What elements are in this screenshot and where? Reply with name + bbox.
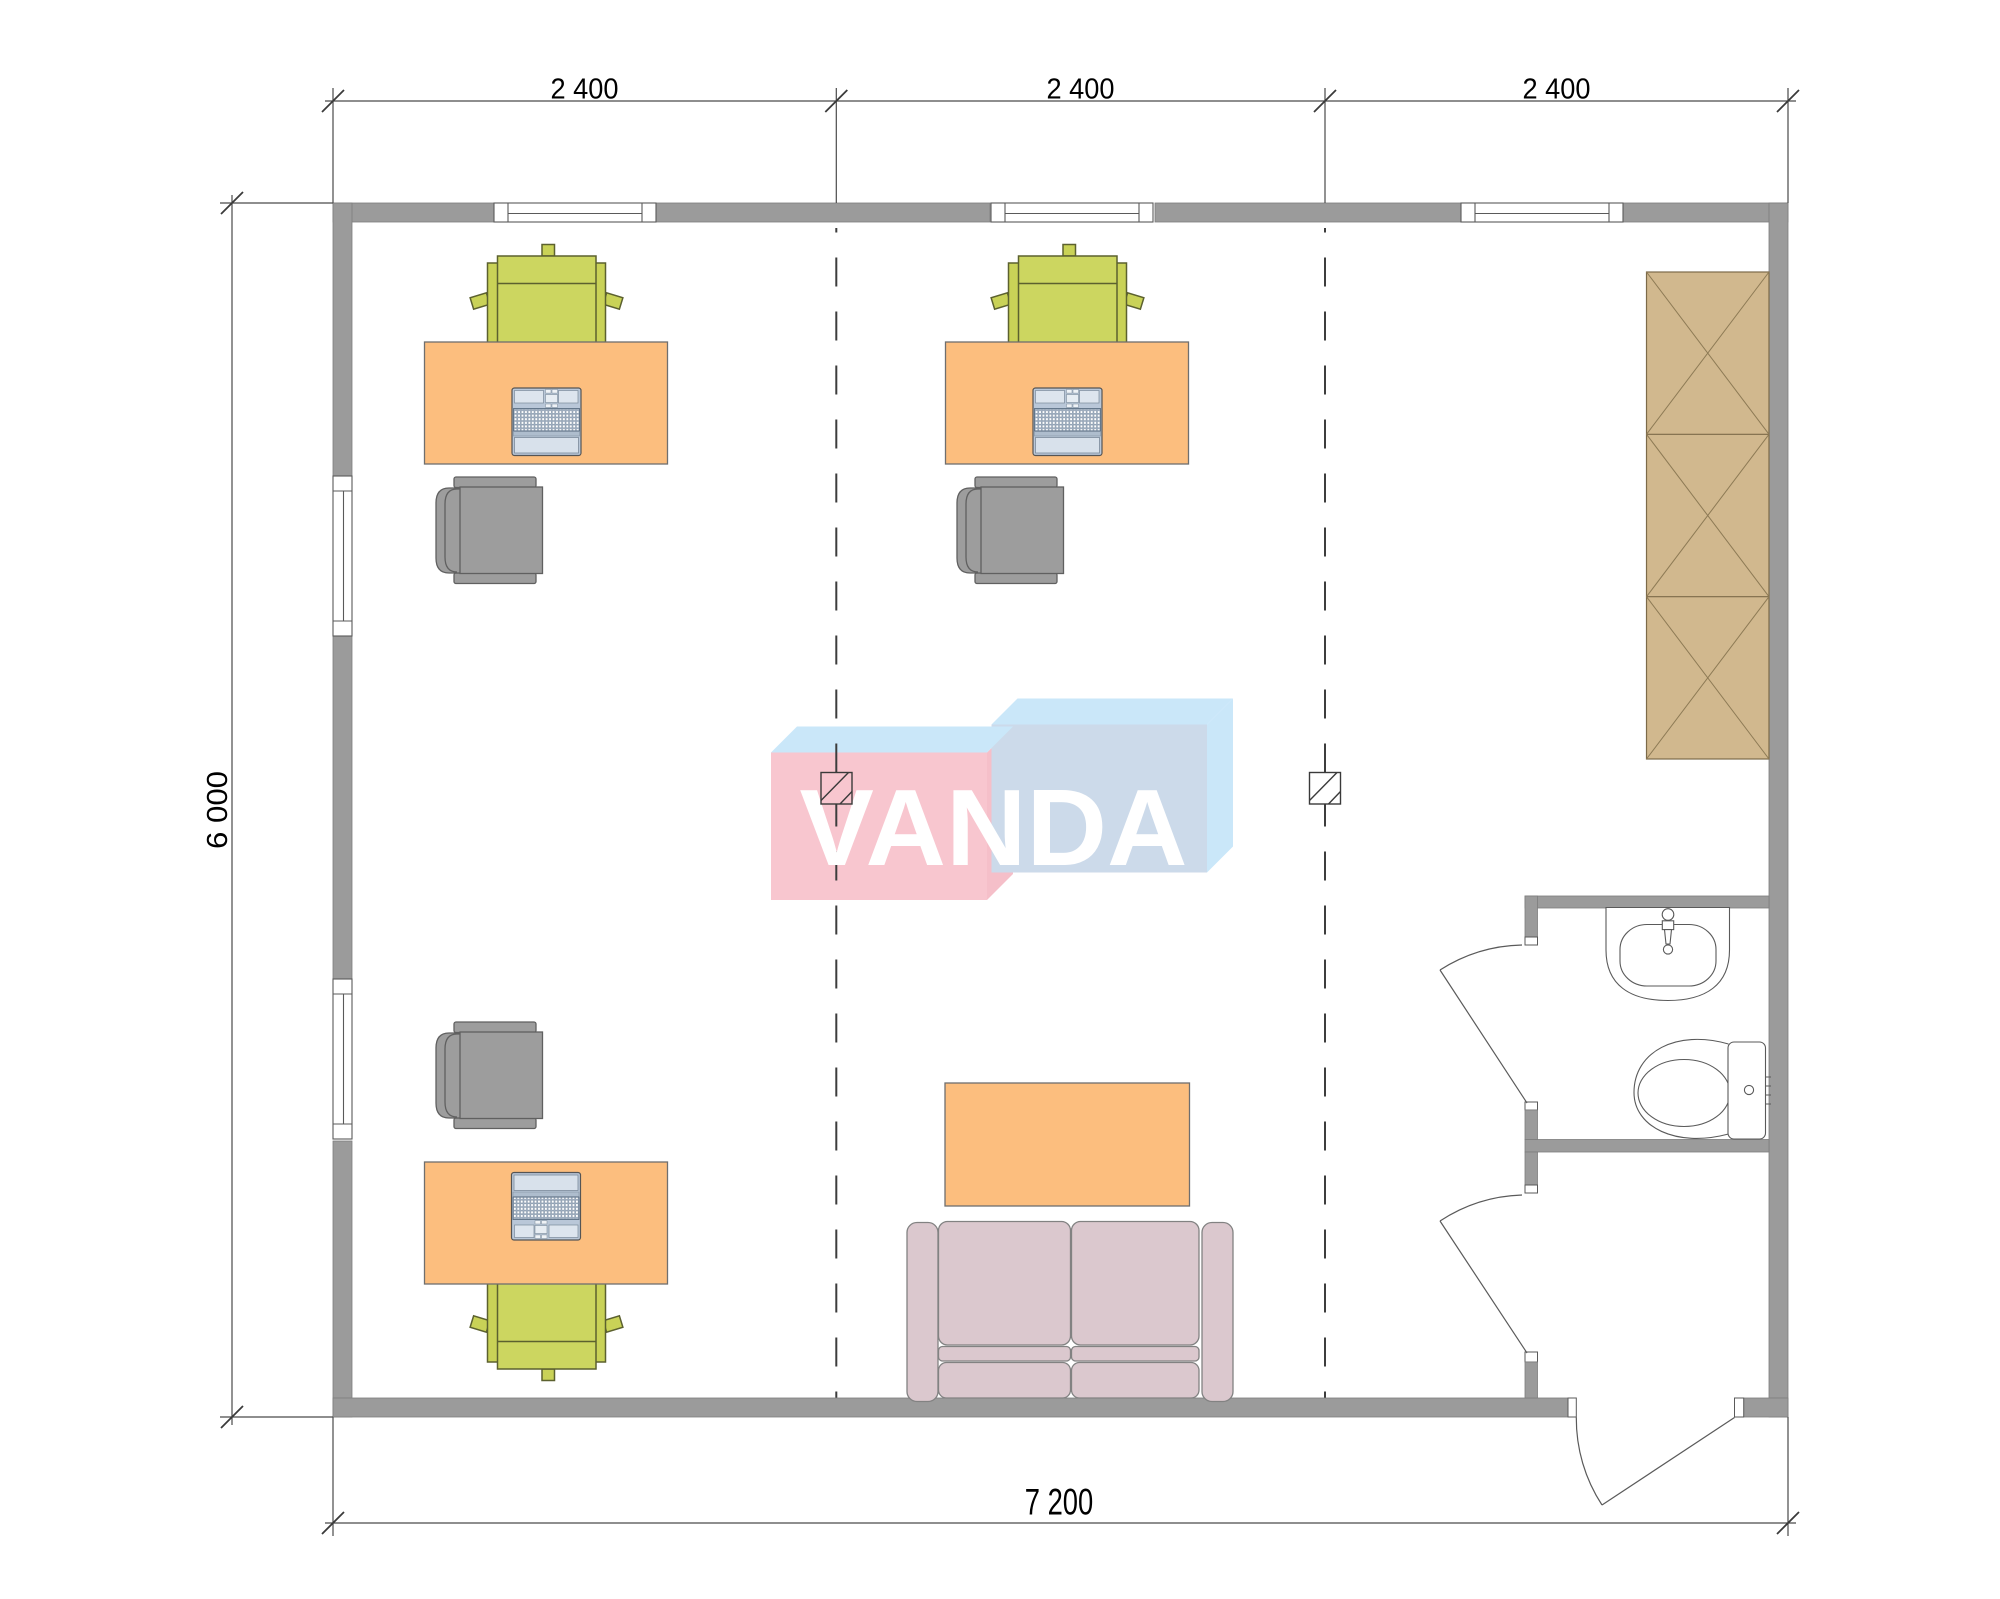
svg-text:2 400: 2 400: [1523, 74, 1591, 106]
svg-text:7 200: 7 200: [1025, 1481, 1094, 1523]
svg-text:2 400: 2 400: [551, 74, 619, 106]
svg-text:6 000: 6 000: [202, 771, 234, 849]
svg-text:VANDA: VANDA: [800, 767, 1188, 889]
svg-text:2 400: 2 400: [1047, 74, 1115, 106]
